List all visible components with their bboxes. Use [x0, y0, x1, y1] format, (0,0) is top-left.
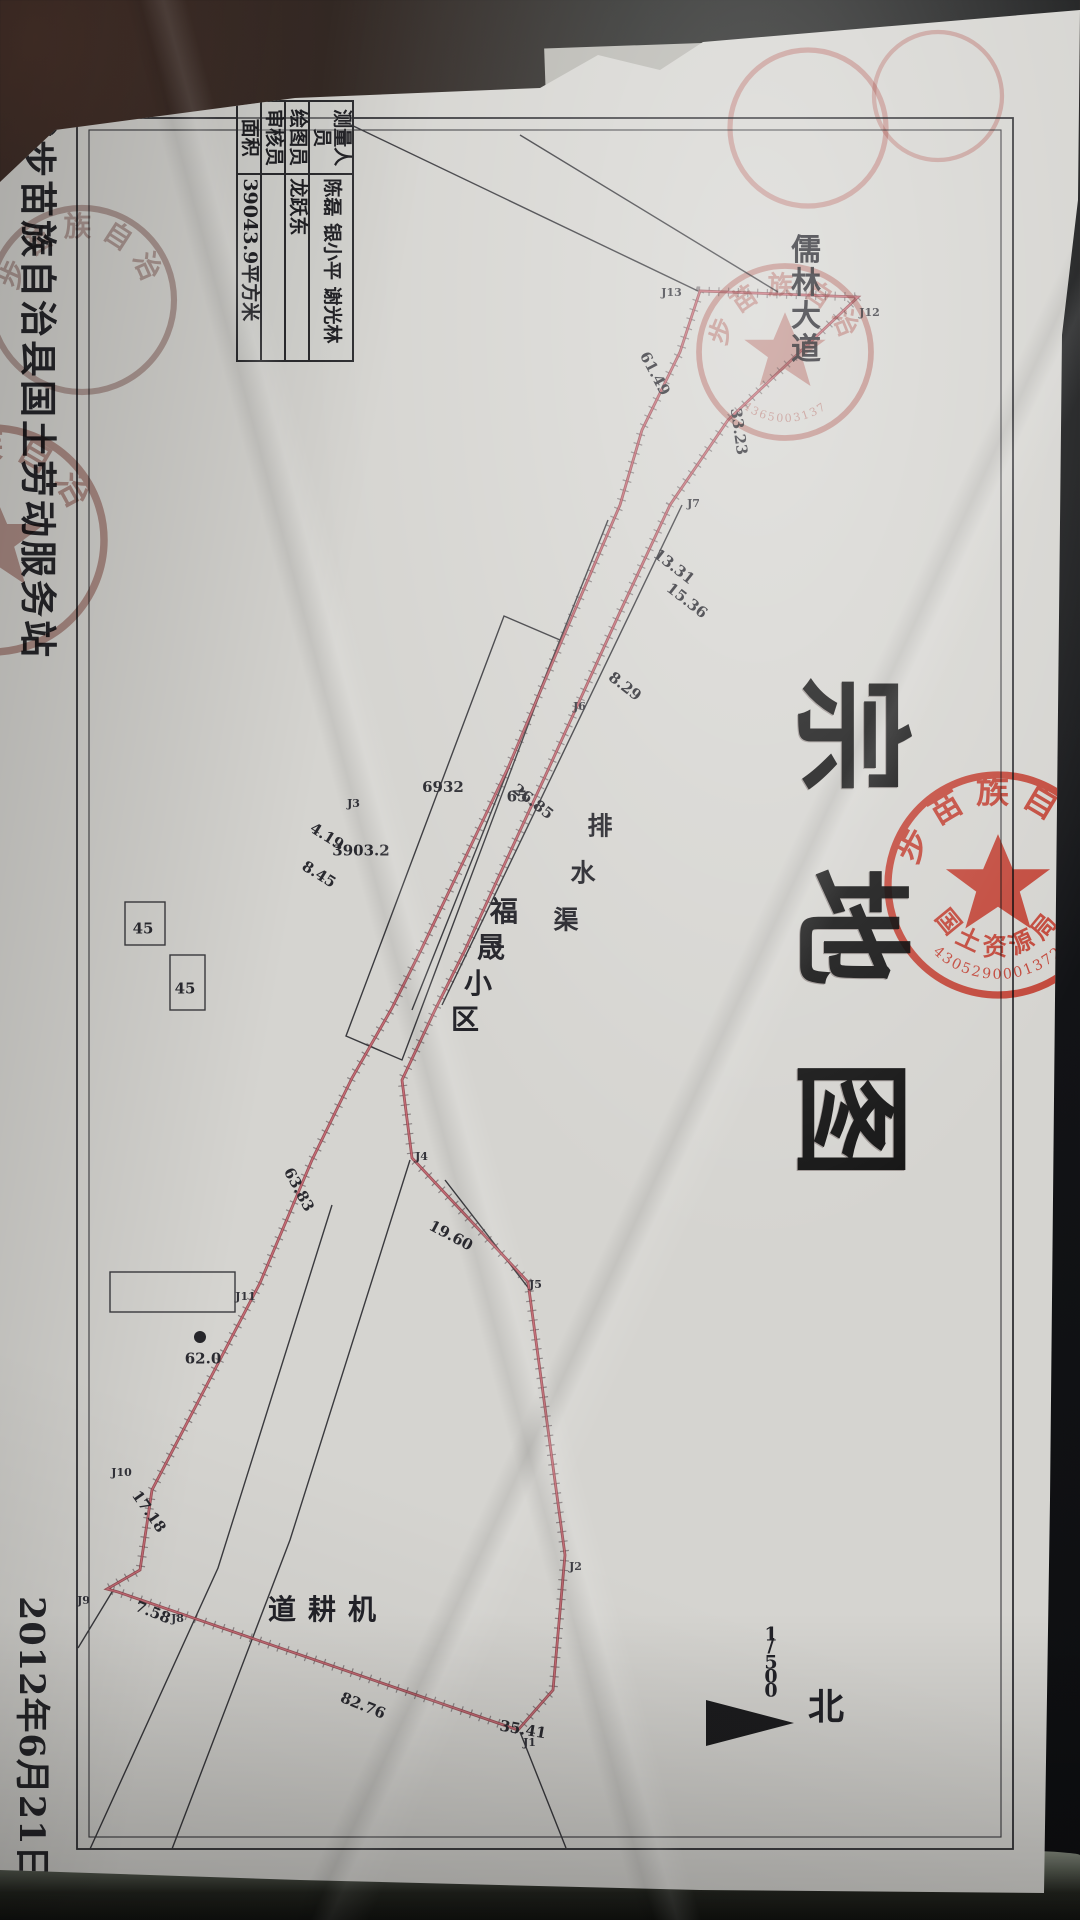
structure-outline — [110, 1272, 235, 1312]
map-label-char: 北 — [808, 1678, 844, 1730]
seal-star-icon — [0, 488, 45, 584]
map-label-char: 区 — [451, 998, 479, 1038]
photo-of-parcel-map: { "colors":{"paper":"#d5d4d0","seal_red"… — [0, 0, 1080, 1920]
measurement-label: 45 — [133, 919, 154, 937]
table-label: 测量人员 — [309, 101, 353, 174]
table-label: 面积 — [237, 101, 261, 174]
table-label: 绘图员 — [285, 101, 309, 174]
measurement-label: 3903.2 — [332, 842, 389, 860]
measurement-label: 45 — [175, 979, 196, 997]
map-label-char: 水 — [570, 854, 595, 890]
point-feature — [194, 1331, 206, 1343]
svg-text:城步苗族自治县: 城步苗族自治县 — [866, 753, 1080, 869]
boundary-tick-marks — [107, 291, 858, 1730]
svg-text:城步苗族自治县: 城步苗族自治县 — [677, 244, 867, 349]
seal-star-icon — [946, 834, 1050, 928]
map-label-char: 小 — [464, 962, 492, 1002]
table-value — [261, 174, 285, 361]
measurement-label: 65 — [507, 787, 528, 805]
map-label-char: 道 — [268, 1588, 296, 1628]
parcel-boundary — [107, 291, 858, 1730]
farm-road-edge-2 — [90, 1205, 332, 1849]
vertex-label: J11 — [235, 1290, 256, 1303]
fusheng-block-outline — [346, 616, 560, 1060]
map-label-char: 福 — [490, 890, 518, 930]
vertex-label: J8 — [171, 1612, 184, 1625]
vertex-label: J9 — [77, 1594, 90, 1607]
north-arrow-icon — [706, 1700, 794, 1746]
svg-text:城步苗族自治县: 城步苗族自治县 — [0, 406, 104, 523]
boundary-ink-line — [107, 291, 858, 1730]
map-label-char: 排 — [587, 807, 612, 843]
table-row: 测量人员 陈磊 银小平 谢光林 — [309, 101, 353, 361]
table-row: 审核员 — [261, 101, 285, 361]
vertex-label: J3 — [347, 797, 360, 810]
document-date: 2012年6月21日 — [9, 1596, 60, 1881]
vertex-label: J10 — [111, 1466, 132, 1479]
table-value: 39043.9平方米 — [237, 174, 261, 361]
map-area-seal: 城步苗族自治县4365003137 — [677, 244, 893, 460]
map-label-char: 机 — [348, 1588, 376, 1628]
paper-sheet: 宗地图 城步苗族自治县国土劳动服务站 2012年6月21日 测量人员 陈磊 银小… — [0, 0, 1080, 1920]
vertex-label: J7 — [687, 497, 700, 510]
parcel-map-document: 宗地图 城步苗族自治县国土劳动服务站 2012年6月21日 测量人员 陈磊 银小… — [0, 0, 1080, 1920]
svg-text:4365003137: 4365003137 — [741, 399, 829, 425]
table-row: 绘图员 龙跃东 — [285, 101, 309, 361]
boundary-red-line — [107, 291, 858, 1730]
seal-star-icon — [744, 312, 825, 386]
vertex-label: J4 — [415, 1150, 428, 1163]
measurement-label: 6932 — [422, 778, 464, 796]
table-value: 陈磊 银小平 谢光林 — [309, 174, 353, 361]
vertex-label: J6 — [573, 700, 586, 713]
vertex-label: J2 — [569, 1560, 582, 1573]
map-label-char: 晟 — [477, 926, 505, 966]
svg-text:城步苗族自治县: 城步苗族自治县 — [0, 186, 172, 294]
county-land-seal-large: 城步苗族自治县国土资源局4305290001372 — [866, 753, 1080, 1017]
table-row: 面积 39043.9平方米 — [237, 101, 261, 361]
edge-seal-fragment-b — [852, 10, 1024, 182]
farm-road-edge-1 — [172, 1160, 410, 1849]
vertex-label: J5 — [529, 1278, 542, 1291]
table-label: 审核员 — [261, 101, 285, 174]
footer-seal: 城步苗族自治县 — [0, 406, 126, 674]
table-value: 龙跃东 — [285, 174, 309, 361]
map-label-char: 耕 — [308, 1588, 336, 1628]
measurement-label: 62.0 — [185, 1349, 222, 1367]
table-seal: 城步苗族自治县 — [0, 186, 196, 414]
map-label-char: 0 — [764, 1680, 777, 1702]
survey-info-table: 测量人员 陈磊 银小平 谢光林 绘图员 龙跃东 审核员 面积 39043.9平方… — [236, 100, 354, 362]
map-label-char: 渠 — [553, 901, 578, 937]
vertex-label: J1 — [523, 1736, 536, 1749]
